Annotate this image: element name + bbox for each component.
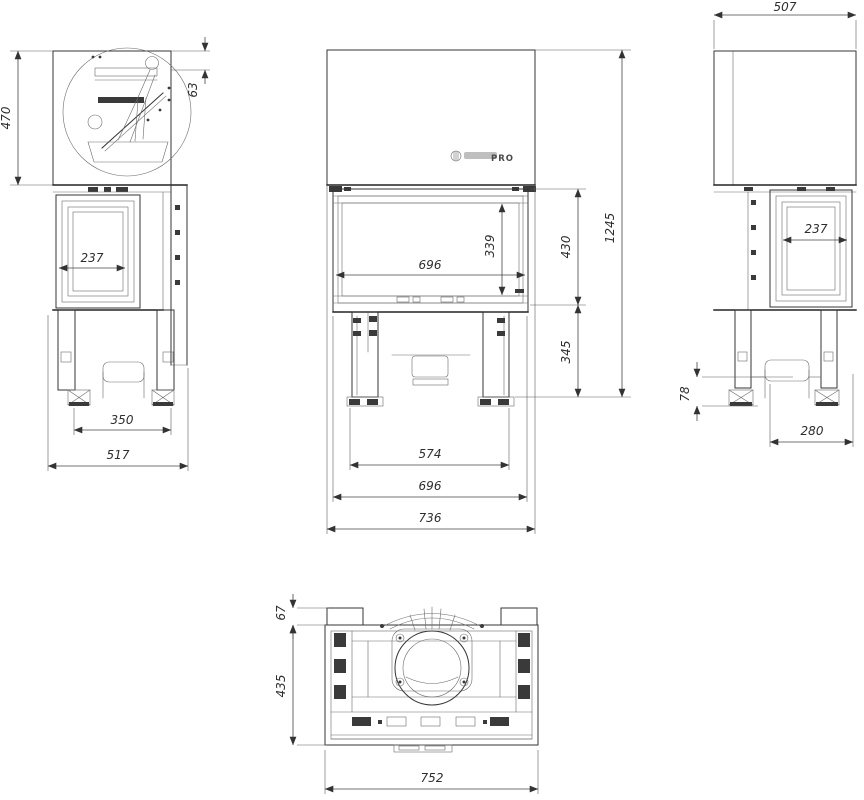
mount-tab (327, 608, 363, 625)
dim-label: 280 (801, 424, 824, 438)
dim-leg-span: 574 (350, 408, 509, 470)
dim-label: 237 (81, 251, 104, 265)
flue-collar (380, 607, 484, 705)
front-view: PRO (327, 50, 631, 534)
dim-label: 574 (419, 447, 442, 461)
dim-glass-height: 339 (483, 204, 502, 295)
left-side-view: 470 63 237 350 517 (0, 37, 210, 471)
dim-label: 78 (678, 386, 692, 402)
dim-overall-height: 1245 (535, 50, 631, 397)
mechanism-detail-circle (63, 48, 191, 176)
dim-front-offset: 67 (274, 594, 329, 639)
fireplace-technical-drawing: 470 63 237 350 517 (0, 0, 864, 800)
dim-body-width: 752 (325, 750, 538, 794)
dim-label: 470 (0, 106, 13, 129)
dim-label: 237 (805, 222, 828, 236)
base-frame (347, 312, 514, 406)
pulley-icon (146, 57, 159, 70)
dim-hood-height: 470 (0, 51, 53, 185)
right-side-view: 507 237 (678, 0, 856, 447)
technical-drawing-page: 470 63 237 350 517 (0, 0, 864, 800)
dim-label: 696 (419, 479, 442, 493)
dim-label: 736 (419, 511, 442, 525)
dim-base-zone-height: 345 (515, 305, 631, 397)
side-glass-door (770, 190, 852, 307)
dim-label: 435 (274, 675, 288, 698)
dim-label: 430 (559, 235, 573, 258)
brand-suffix: PRO (491, 154, 514, 164)
dim-body-depth: 435 (274, 625, 327, 745)
door-latch (515, 289, 524, 293)
hood-outline (327, 50, 535, 185)
hood-outline (714, 51, 856, 185)
front-glass-door (333, 189, 528, 312)
dim-label: 345 (559, 341, 573, 364)
dim-label: 1245 (603, 213, 617, 244)
dim-label: 752 (421, 771, 444, 785)
dim-overall-depth: 517 (48, 315, 188, 471)
dim-label: 507 (774, 0, 797, 14)
dim-overall-depth: 507 (714, 0, 856, 49)
base-frame (729, 310, 839, 406)
dim-foot-spacing: 350 (74, 408, 171, 435)
dim-door-zone-height: 430 (530, 189, 586, 305)
dim-label: 517 (107, 448, 130, 462)
pulley-icon (88, 115, 102, 129)
dim-side-glass-width: 237 (59, 251, 125, 268)
top-view: 67 435 752 (274, 594, 538, 794)
hood-outline (53, 51, 171, 185)
dim-base-depth: 280 (770, 374, 853, 447)
dim-label: 67 (274, 605, 288, 621)
dim-label: 339 (483, 235, 497, 258)
dim-top-offset: 63 (171, 37, 210, 98)
dim-glass-width: 696 (336, 258, 525, 275)
dim-side-glass-width: 237 (783, 222, 847, 240)
dim-body-width: 696 (333, 316, 527, 502)
dim-label: 350 (111, 413, 134, 427)
dim-label: 63 (186, 82, 200, 97)
dim-label: 696 (419, 258, 442, 272)
body-outline (325, 625, 538, 745)
brand-logo: PRO (451, 151, 514, 164)
base-frame (58, 310, 174, 406)
mount-tab (501, 608, 537, 625)
